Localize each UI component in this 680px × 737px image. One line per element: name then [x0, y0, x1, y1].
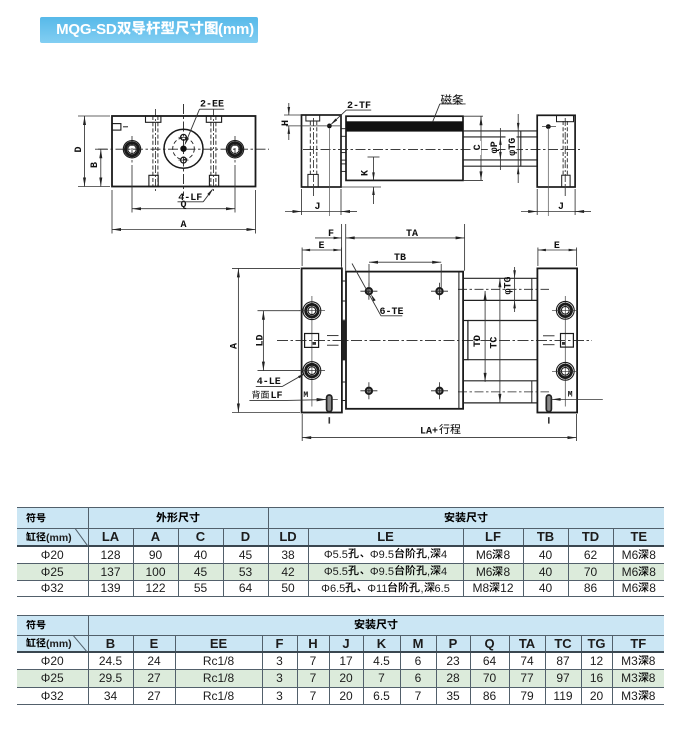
svg-text:C: C: [473, 144, 484, 150]
svg-text:LD: LD: [255, 334, 266, 346]
svg-text:φTG: φTG: [504, 276, 515, 294]
svg-text:A: A: [230, 343, 241, 349]
svg-text:H: H: [281, 120, 292, 126]
svg-text:φP: φP: [490, 141, 501, 153]
svg-text:A: A: [180, 220, 186, 231]
svg-text:M: M: [568, 391, 573, 400]
svg-text:E: E: [554, 241, 560, 252]
svg-text:LA+: LA+: [420, 427, 438, 438]
svg-text:M: M: [303, 391, 308, 400]
svg-text:K: K: [361, 170, 372, 176]
svg-text:J: J: [314, 202, 320, 213]
svg-text:TB: TB: [394, 253, 406, 264]
svg-text:F: F: [328, 229, 334, 240]
svg-text:D: D: [74, 146, 85, 152]
svg-text:TA: TA: [406, 229, 418, 240]
svg-text:φTG: φTG: [508, 138, 519, 156]
svg-text:TD: TD: [473, 335, 484, 347]
svg-text:E: E: [318, 241, 324, 252]
svg-text:4-LF: 4-LF: [178, 193, 202, 204]
svg-text:J: J: [558, 202, 564, 213]
svg-text:B: B: [90, 162, 101, 168]
svg-text:TC: TC: [489, 337, 500, 349]
